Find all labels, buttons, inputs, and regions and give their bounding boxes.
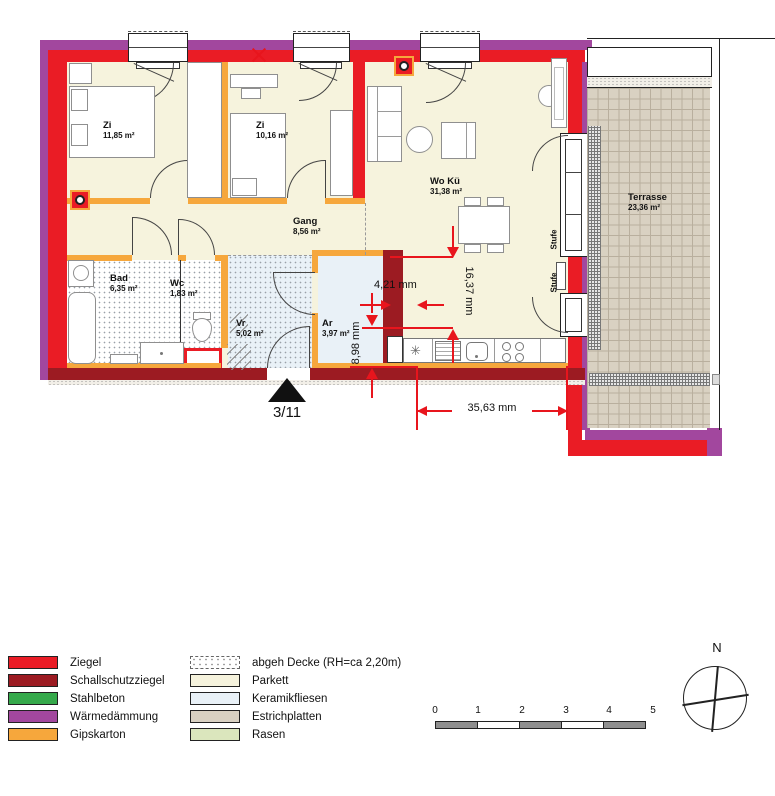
lining-kitchen (403, 363, 568, 368)
dim-line (362, 327, 453, 329)
step-label: Stufe (550, 263, 561, 303)
pillow (71, 89, 88, 111)
room-label-living-kitchen: Wo Kü 31,38 m² (430, 176, 462, 197)
legend-label: abgeh Decke (RH=ca 2,20m) (252, 657, 401, 669)
sofa-cushion-line (378, 111, 401, 112)
room-label-bedroom1: Zi 11,85 m² (103, 120, 135, 141)
room-name: Vr (236, 318, 264, 329)
scale-tick-0: 0 (425, 705, 445, 716)
room-label-wc: Wc 1,83 m² (170, 278, 198, 299)
dim-line (452, 338, 454, 363)
coat-rack-hatch (227, 344, 251, 370)
dim-line (566, 366, 568, 430)
counter-divider (540, 339, 541, 362)
terrain-strip (48, 380, 585, 385)
room-area: 3,97 m² (322, 329, 350, 339)
legend-swatch-waermedaemmung (8, 710, 58, 723)
legend-label: Estrichplatten (252, 711, 322, 723)
scale-tick-3: 3 (556, 705, 576, 716)
dim-text-kitchen-height: 16,37 mm (463, 251, 475, 331)
terrace-planter (587, 47, 712, 77)
legend-label: Stahlbeton (70, 693, 125, 705)
counter-divider (494, 339, 495, 362)
legend-swatch-keramikfliesen (190, 692, 240, 705)
cooktop-burner (515, 342, 524, 351)
partition-storage-left-1 (312, 255, 318, 273)
legend-row: Gipskarton (8, 728, 165, 741)
dim-text-terrace-width: 35,63 mm (452, 402, 532, 414)
pillow (232, 178, 257, 196)
room-name: Ar (322, 318, 350, 329)
chair (464, 197, 481, 206)
room-name: Zi (256, 120, 288, 131)
riser-pipe-icon (75, 195, 85, 205)
dim-line (371, 378, 373, 398)
dim-text-lower-height: 8,98 mm (350, 308, 362, 378)
scale-tick-2: 2 (512, 705, 532, 716)
partition-bedrooms-hall-3 (325, 198, 365, 204)
sink-bowl (466, 342, 488, 361)
cooktop-burner (515, 353, 524, 362)
legend-row: Schallschutzziegel (8, 674, 165, 687)
door-wc-leaf (178, 219, 179, 255)
legend-row: Stahlbeton (8, 692, 165, 705)
dishwasher-icon (410, 342, 424, 356)
legend-swatch-abgeh-decke (190, 656, 240, 669)
legend-swatch-parkett (190, 674, 240, 687)
dim-tick (371, 293, 373, 313)
partition-bedrooms-hall-2 (188, 198, 287, 204)
sofa-cushion-line (378, 136, 401, 137)
room-name: Zi (103, 120, 135, 131)
room-boundary-dashed-h (228, 255, 312, 256)
partition-bath-wc (180, 260, 181, 348)
wardrobe (330, 110, 353, 196)
coffee-table (406, 126, 433, 153)
room-area: 10,16 m² (256, 131, 288, 141)
scale-segment (435, 721, 478, 729)
room-area: 11,85 m² (103, 131, 135, 141)
chair (241, 88, 261, 99)
dim-line (416, 366, 418, 430)
counter-divider (432, 339, 433, 362)
sink-drain-dot (475, 355, 478, 358)
legend-label: Schallschutzziegel (70, 675, 165, 687)
terrace-door-unit-top-div1 (565, 172, 582, 173)
wall-niche (387, 336, 403, 363)
legend-row: Parkett (190, 674, 401, 687)
armchair-line (466, 123, 467, 158)
north-label: N (702, 640, 732, 655)
legend-label: Ziegel (70, 657, 101, 669)
dim-line (390, 256, 453, 258)
partition-storage-left-2 (312, 313, 318, 368)
desk (230, 74, 278, 88)
window-bedroom2 (293, 30, 350, 32)
room-name: Bad (110, 273, 138, 284)
legend-label: Parkett (252, 675, 288, 687)
scale-bar: 0 1 2 3 4 5 (425, 705, 675, 735)
room-label-bath: Bad 6,35 m² (110, 273, 138, 294)
terrace-wall-bottom (582, 440, 707, 456)
room-area: 8,56 m² (293, 227, 321, 237)
legend-row: Wärmedämmung (8, 710, 165, 723)
north-compass: N (680, 640, 755, 745)
chair (487, 197, 504, 206)
door-storage-leaf (273, 272, 315, 273)
legend-row: Estrichplatten (190, 710, 401, 723)
armchair (441, 122, 476, 159)
scale-bar-segments (435, 721, 645, 729)
window-bedroom2-midline (294, 47, 349, 48)
sofa-cushion-line (377, 87, 378, 161)
scale-segment (561, 721, 604, 729)
door-bath-leaf (132, 217, 133, 255)
room-label-hall: Gang 8,56 m² (293, 216, 321, 237)
room-boundary-dashed-v (365, 203, 366, 255)
legend-swatch-estrichplatten (190, 710, 240, 723)
scale-tick-5: 5 (643, 705, 663, 716)
shelf (110, 354, 138, 364)
partition-vestibule-left (221, 260, 228, 348)
legend-right-column: abgeh Decke (RH=ca 2,20m) Parkett Kerami… (190, 656, 401, 746)
legend-row: Rasen (190, 728, 401, 741)
legend-label: Gipskarton (70, 729, 126, 741)
terrace-insulation-bottom (585, 430, 707, 440)
legend-swatch-schallschutzziegel (8, 674, 58, 687)
drain-grate-horizontal (589, 373, 710, 386)
wall-left (48, 62, 67, 368)
washing-machine-door (73, 265, 89, 281)
drain-outlet (712, 374, 720, 385)
room-name: Wc (170, 278, 198, 289)
wall-right (568, 62, 582, 456)
entrance-triangle (268, 378, 306, 402)
legend-swatch-gipskarton (8, 728, 58, 741)
partition-storage-top (312, 250, 385, 256)
room-label-bedroom2: Zi 10,16 m² (256, 120, 288, 141)
legend-swatch-stahlbeton (8, 692, 58, 705)
partition-bedroom-divider (222, 62, 228, 198)
terrace-insulation-cap (707, 428, 722, 456)
riser-box-living (394, 56, 414, 76)
legend-left-column: Ziegel Schallschutzziegel Stahlbeton Wär… (8, 656, 165, 746)
dim-text-wall-width: 4,21 mm (374, 279, 417, 291)
room-name: Gang (293, 216, 321, 227)
scale-segment (603, 721, 646, 729)
window-living (420, 30, 480, 32)
property-line-top (587, 38, 775, 39)
window-bedroom1 (128, 30, 188, 32)
scale-segment (519, 721, 562, 729)
dim-arrow-down (366, 315, 378, 326)
terrace-gravel-strip (587, 77, 712, 88)
dining-table (458, 206, 510, 244)
step-label: Stufe (550, 220, 561, 260)
sink-drainer (435, 341, 461, 361)
window-bedroom1-midline (129, 47, 187, 48)
legend-row: Ziegel (8, 656, 165, 669)
floor-plan-sheet: 3/11 Zi 11,85 m² Zi 10,16 m² Wo Kü 31,38… (0, 0, 775, 796)
dim-arrow-right (381, 300, 391, 310)
room-label-storage: Ar 3,97 m² (322, 318, 350, 339)
room-area: 1,83 m² (170, 289, 198, 299)
cooktop-burner (502, 353, 511, 362)
riser-pipe-icon (399, 61, 409, 71)
room-label-vestibule: Vr 5,02 m² (236, 318, 264, 339)
pillow (71, 124, 88, 146)
room-name: Terrasse (628, 192, 667, 203)
room-label-terrace: Terrasse 23,36 m² (628, 192, 667, 213)
riser-box-bedroom1 (70, 190, 90, 210)
legend-swatch-rasen (190, 728, 240, 741)
door-entrance-leaf (309, 326, 310, 368)
legend-label: Keramikfliesen (252, 693, 327, 705)
washbasin-drain-dot (160, 352, 163, 355)
legend-label: Wärmedämmung (70, 711, 158, 723)
wall-bedroom2-living (353, 62, 365, 198)
nightstand (69, 63, 92, 84)
dim-line (426, 304, 444, 306)
property-line-right (719, 38, 720, 430)
room-area: 5,02 m² (236, 329, 264, 339)
terrace-door-unit-top-div2 (565, 214, 582, 215)
unit-number: 3/11 (259, 404, 315, 422)
bathtub (68, 292, 96, 364)
drain-grate-vertical (588, 126, 601, 350)
room-name: Wo Kü (430, 176, 462, 187)
tall-cabinet-inner (554, 67, 564, 120)
door-bedroom2-leaf (325, 160, 326, 198)
dim-arrow-left (417, 406, 427, 416)
floor-plan: 3/11 Zi 11,85 m² Zi 10,16 m² Wo Kü 31,38… (0, 0, 775, 470)
room-area: 6,35 m² (110, 284, 138, 294)
window-living-midline (421, 47, 479, 48)
legend-label: Rasen (252, 729, 285, 741)
legend-row: abgeh Decke (RH=ca 2,20m) (190, 656, 401, 669)
room-area: 31,38 m² (430, 187, 462, 197)
room-area: 23,36 m² (628, 203, 667, 213)
scale-tick-1: 1 (468, 705, 488, 716)
cooktop-burner (502, 342, 511, 351)
legend-row: Keramikfliesen (190, 692, 401, 705)
scale-tick-4: 4 (599, 705, 619, 716)
chair (487, 244, 504, 253)
legend-swatch-ziegel (8, 656, 58, 669)
sofa (367, 86, 402, 162)
scale-segment (477, 721, 520, 729)
wardrobe (187, 62, 222, 198)
